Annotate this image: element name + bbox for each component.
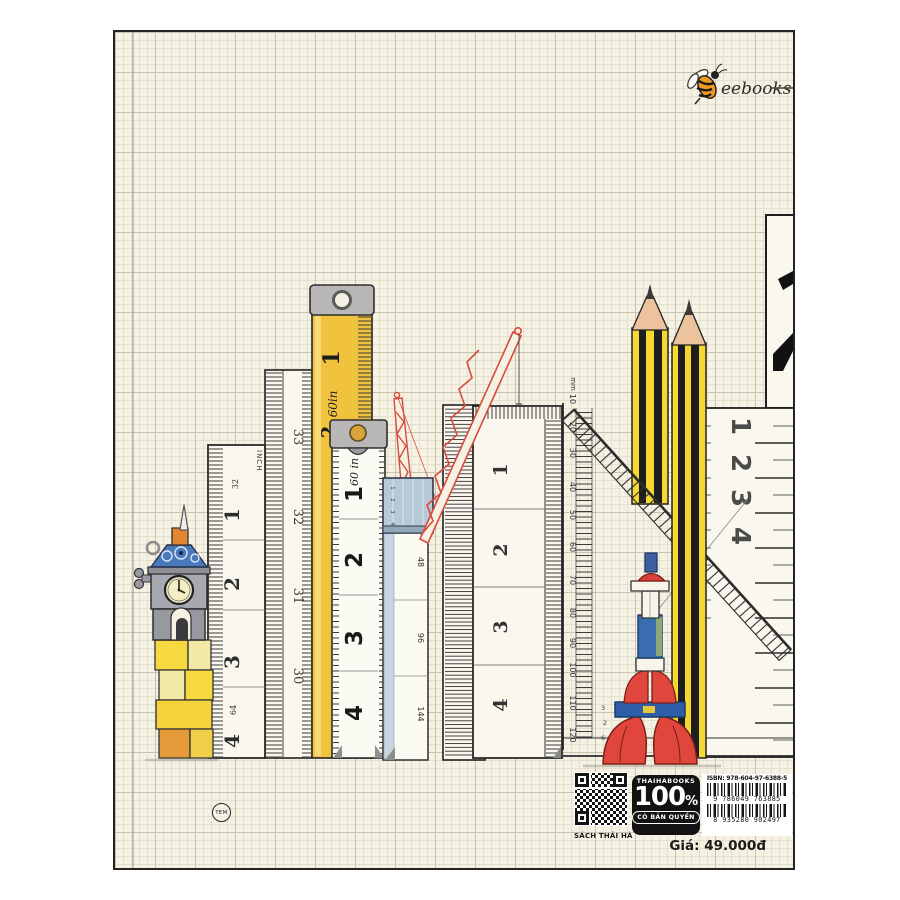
half-label: 32	[231, 479, 240, 489]
cover-graph-paper: eebooks 1 2 3 4	[113, 30, 795, 870]
spire	[180, 505, 188, 530]
inner-mark: 6	[601, 734, 605, 742]
ruler-block-blue: 1 2 3 4	[383, 478, 433, 533]
tape-number: 1	[342, 486, 368, 502]
tape-label: 60in	[326, 391, 340, 418]
scale-number: 70	[568, 575, 577, 585]
brand-wordmark: eebooks	[721, 79, 792, 99]
ruler-number: 4	[389, 522, 395, 525]
ruler-number: 2	[490, 543, 512, 556]
ruler-number: 48	[416, 557, 425, 567]
ruler-number: 2	[725, 454, 755, 472]
scale-number: 50	[568, 510, 577, 520]
barcode-panel: ISBN: 978-604-97-6388-5 9 786049 763885 …	[702, 774, 792, 836]
ruler-number: 3	[490, 620, 512, 633]
ruler-inch: INCH 32 64 1 2 3 4	[208, 445, 265, 758]
tape-end-clip	[310, 285, 374, 315]
tape-number: 1	[319, 350, 345, 365]
unit-label: INCH	[255, 450, 263, 471]
scale-number: 10	[568, 394, 577, 404]
pencil-icon	[672, 299, 706, 758]
ruler-number: 30	[290, 668, 305, 685]
qr-caption: SÁCH THÁI HÀ	[574, 832, 628, 840]
tape-number: 4	[342, 705, 368, 721]
barcode-digits: 9 786049 763885	[705, 796, 789, 803]
scale-number: 100	[568, 662, 577, 677]
ruler-panel-partial	[766, 215, 793, 408]
scale-number: 90	[568, 638, 577, 648]
ruler-number: 4	[490, 698, 512, 711]
ruler-number: 1	[490, 463, 512, 476]
certification-badge: THAIHABOOKS 100% CÓ BẢN QUYỀN	[632, 775, 700, 835]
badge-tagline: CÓ BẢN QUYỀN	[632, 811, 700, 824]
qr-code	[574, 772, 628, 826]
ruler-number: 33	[290, 429, 305, 446]
scale-number: 30	[568, 448, 577, 458]
big-ben-tower	[135, 505, 219, 760]
ruler-wide: 1 2 3 4	[473, 406, 562, 758]
tape-number: 3	[342, 630, 368, 646]
scale-number: 110	[568, 695, 577, 710]
half-label: 64	[229, 705, 238, 715]
ruler-number: 4	[220, 734, 244, 748]
scale-number: 60	[568, 542, 577, 552]
scale-number: 40	[568, 482, 577, 492]
ruler-number: 3	[389, 510, 395, 513]
ruler-number: 31	[290, 588, 305, 605]
clock-face	[165, 576, 193, 604]
book-back-cover-photo: eebooks 1 2 3 4	[0, 0, 900, 900]
ruler-multiples: 48 96 144	[383, 530, 428, 760]
cover-illustration: eebooks 1 2 3 4	[115, 32, 793, 868]
ruler-number: 1	[220, 508, 244, 522]
ruler-number: 4	[725, 527, 755, 545]
badge-percent-sign: %	[685, 794, 698, 809]
tape-measure-white: 60 in 1 2 3 4	[330, 420, 387, 758]
ruler-countdown: 33 32 31 30	[265, 370, 312, 758]
keyring-icon	[147, 542, 159, 554]
ruler-number: 32	[290, 509, 305, 526]
ruler-number: 144	[416, 706, 425, 721]
publisher-logo: eebooks	[686, 64, 793, 104]
ruler-number: 3	[220, 655, 244, 669]
inner-mark: 3	[601, 704, 605, 712]
ruler-number: 2	[220, 577, 244, 591]
isbn-label: ISBN: 978-604-97-6388-5	[705, 775, 789, 782]
ruler-number: 1	[725, 417, 755, 435]
ruler-number: 1	[389, 486, 395, 489]
ruler-number: 96	[416, 633, 425, 643]
scale-number: 120	[568, 727, 577, 742]
ruler-number: 3	[725, 489, 755, 507]
price-label: Giá: 49.000đ	[669, 838, 766, 854]
barcode-digits: 8 935280 902497	[705, 817, 789, 824]
badge-percent: 100%	[634, 785, 698, 810]
scale-number: 80	[568, 608, 577, 618]
tower-leg	[603, 716, 646, 764]
tape-label: 60 in	[348, 458, 361, 486]
tem-stamp: TEM	[212, 803, 231, 822]
badge-percent-value: 100	[634, 782, 685, 812]
tape-number: 2	[342, 552, 368, 568]
ruler-number: 2	[389, 498, 395, 501]
inner-mark: 2	[603, 719, 607, 727]
pencil-icon	[632, 284, 668, 504]
unit-label: mm	[569, 377, 577, 391]
qr-code-block: SÁCH THÁI HÀ	[574, 772, 628, 840]
